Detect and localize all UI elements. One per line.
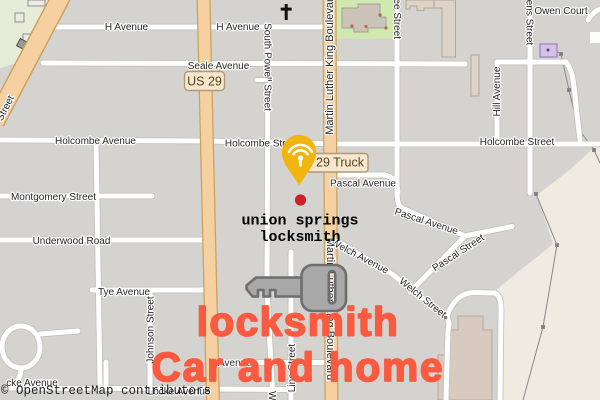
- svg-text:H Avenue: H Avenue: [105, 22, 149, 33]
- svg-text:locksmith: locksmith: [259, 229, 340, 246]
- svg-text:Hill Avenue: Hill Avenue: [492, 66, 503, 116]
- svg-text:H Avenue: H Avenue: [216, 22, 260, 33]
- svg-text:Owens Street: Owens Street: [524, 0, 535, 46]
- svg-text:Seale Avenue: Seale Avenue: [188, 61, 250, 72]
- svg-text:Martin Luther King Boulevard: Martin Luther King Boulevard: [324, 0, 336, 135]
- svg-text:Holcombe Avenue: Holcombe Avenue: [55, 136, 136, 147]
- svg-text:Pascal Avenue: Pascal Avenue: [330, 179, 396, 190]
- svg-text:Owen Court: Owen Court: [534, 6, 588, 17]
- svg-text:29 Truck: 29 Truck: [316, 156, 365, 170]
- svg-text:Montgomery Street: Montgomery Street: [11, 192, 96, 203]
- svg-text:© OpenStreetMap contributors: © OpenStreetMap contributors: [1, 384, 211, 398]
- svg-text:US 29: US 29: [187, 75, 222, 89]
- svg-text:union springs: union springs: [241, 213, 358, 230]
- svg-text:Tye Avenue: Tye Avenue: [98, 287, 151, 298]
- svg-text:Holcombe Stre: Holcombe Stre: [225, 139, 292, 150]
- svg-text:locksmith: locksmith: [197, 299, 400, 345]
- svg-text:Underwood Road: Underwood Road: [33, 236, 111, 247]
- svg-text:South Powell Street: South Powell Street: [262, 23, 273, 111]
- svg-text:Holcombe Street: Holcombe Street: [480, 137, 555, 148]
- svg-text:Water Street: Water Street: [266, 391, 277, 400]
- svg-text:Lee Street: Lee Street: [391, 0, 402, 39]
